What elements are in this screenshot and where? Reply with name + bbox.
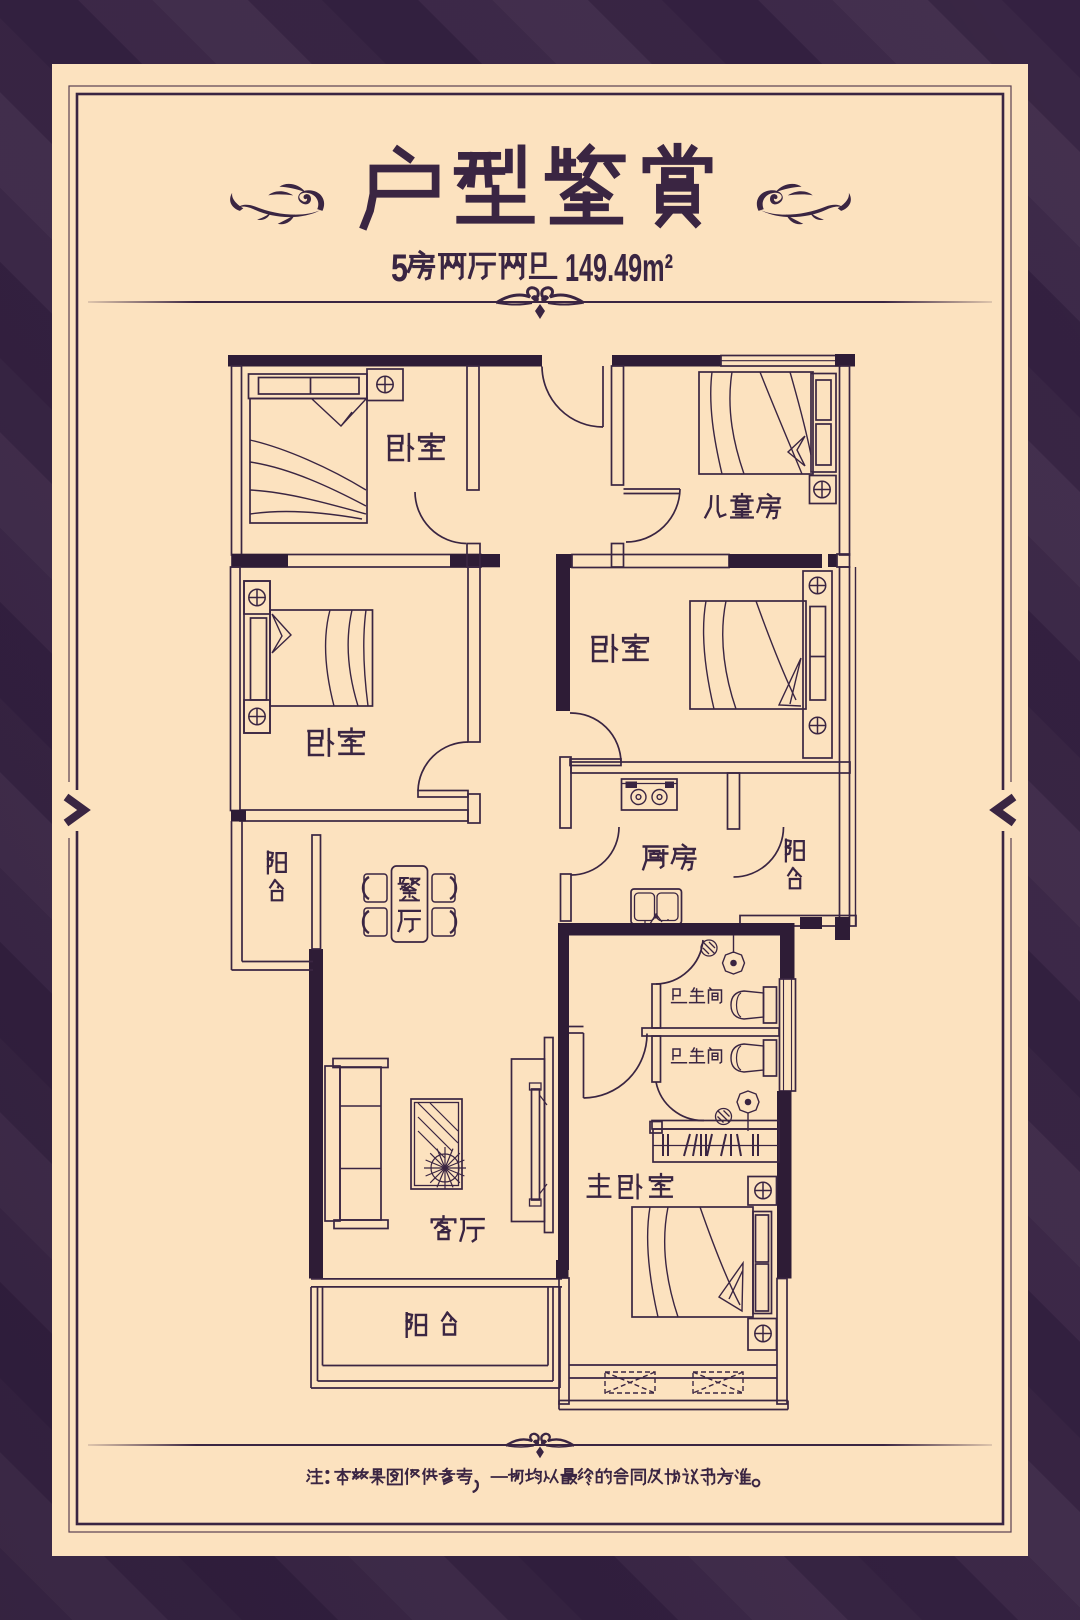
svg-text:149.49m²: 149.49m² (565, 247, 673, 290)
svg-text:5: 5 (391, 247, 408, 290)
